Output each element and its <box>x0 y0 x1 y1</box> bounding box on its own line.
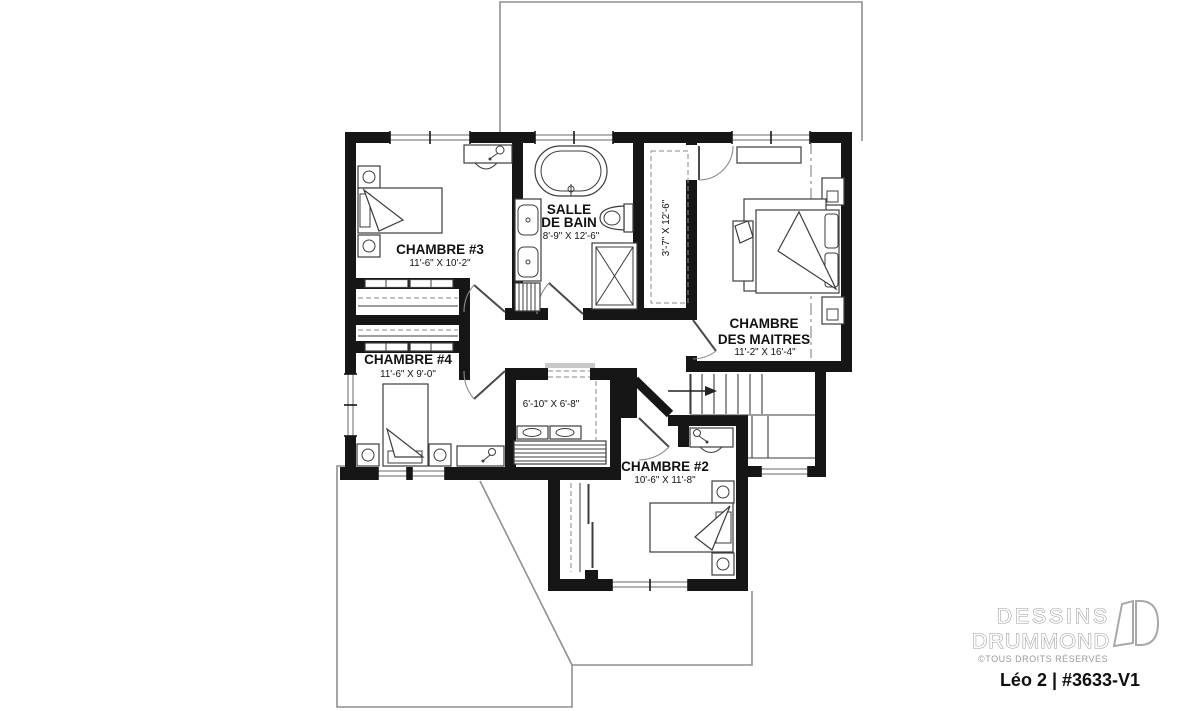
window-chambre4-bottom-1 <box>378 467 407 480</box>
shower-icon <box>592 243 637 309</box>
dims-chambre3: 11'-6" X 10'-2" <box>409 258 471 269</box>
bathtub-icon <box>535 146 607 196</box>
nightstand-icon <box>712 553 734 575</box>
floor-plan-svg: CHAMBRE #3 11'-6" X 10'-2" SALLE DE BAIN… <box>0 0 1200 711</box>
bed-icon <box>358 188 442 233</box>
chambre4-furniture <box>357 384 504 466</box>
branding: DESSINS DRUMMOND ©TOUS DROITS RÉSERVÉS L… <box>972 601 1158 690</box>
door-swing-master <box>693 320 716 359</box>
label-master-1: CHAMBRE <box>730 316 799 331</box>
chambre3-furniture <box>358 145 512 257</box>
nightstand-icon <box>357 444 379 466</box>
washer-icon <box>517 426 548 439</box>
floor-plan-page: CHAMBRE #3 11'-6" X 10'-2" SALLE DE BAIN… <box>0 0 1200 711</box>
window-chambre2-bottom <box>612 579 688 591</box>
chambre2-furniture <box>650 428 734 575</box>
logo-company-line2: DRUMMOND <box>972 629 1110 653</box>
window-stairs-bottom <box>761 466 808 477</box>
label-chambre4: CHAMBRE #4 <box>364 352 452 367</box>
dims-walkin: 3'-7" X 12'-6" <box>661 199 672 256</box>
bed-icon <box>744 199 839 293</box>
label-chambre2: CHAMBRE #2 <box>621 459 709 474</box>
nightstand-icon <box>429 444 451 466</box>
logo-company-line1: DESSINS <box>997 605 1110 628</box>
dryer-icon <box>550 426 581 439</box>
window-master-top <box>732 131 810 144</box>
door-swing-chambre4 <box>464 371 505 399</box>
closet-chambre2 <box>571 483 593 572</box>
toilet-icon <box>600 204 633 232</box>
nightstand-icon <box>358 166 380 188</box>
label-master-2: DES MAITRES <box>718 332 810 347</box>
closet-chambre3 <box>358 280 458 307</box>
label-bath-2: DE BAIN <box>541 215 597 230</box>
door-swing-chambre3 <box>464 285 505 312</box>
desk-icon <box>690 428 733 453</box>
desk-icon <box>464 145 512 169</box>
closet-chambre4 <box>358 330 458 351</box>
stairs-direction-arrow <box>668 386 717 396</box>
laundry-counter-icon <box>514 441 606 464</box>
door-swing-chambre2 <box>639 418 669 460</box>
drummond-d-icon <box>1114 601 1158 646</box>
plan-id: Léo 2 | #3633-V1 <box>1000 670 1140 690</box>
dims-master: 11'-2" X 16'-4" <box>734 347 796 358</box>
opening-laundry <box>545 363 595 377</box>
door-swing-walkin <box>699 146 733 180</box>
bench-icon <box>733 221 753 281</box>
window-bath-top <box>535 131 613 144</box>
label-chambre3: CHAMBRE #3 <box>396 242 484 257</box>
dresser-icon <box>737 147 801 163</box>
window-chambre4-bottom-2 <box>412 467 445 480</box>
window-chambre4-left <box>344 374 357 436</box>
bed-icon <box>383 384 428 466</box>
nightstand-icon <box>712 481 734 503</box>
logo-rights: ©TOUS DROITS RÉSERVÉS <box>978 654 1108 664</box>
dims-bath: 8'-9" X 12'-6" <box>543 231 600 242</box>
vanity-sinks-icon <box>515 199 541 281</box>
desk-icon <box>457 446 504 466</box>
laundry-fixtures <box>514 381 606 464</box>
dims-laundry: 6'-10" X 6'-8" <box>523 399 580 410</box>
dims-chambre2: 10'-6" X 11'-8" <box>634 475 696 486</box>
linen-shelves-icon <box>515 283 540 311</box>
dims-chambre4: 11'-6" X 9'-0" <box>380 369 436 380</box>
roof-outline-top <box>500 2 862 141</box>
bed-icon <box>650 503 733 552</box>
window-chambre3-top <box>390 131 470 144</box>
chamfer-wall <box>635 380 670 414</box>
nightstand-icon <box>358 235 380 257</box>
